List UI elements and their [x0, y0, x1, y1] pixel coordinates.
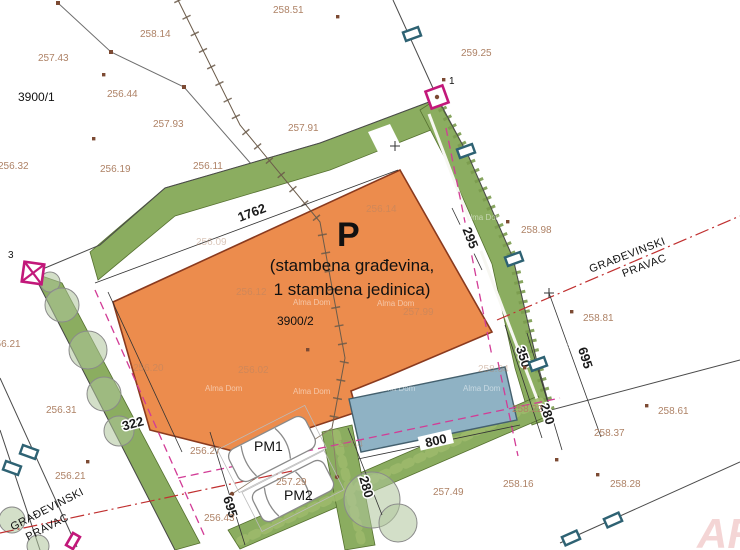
- spot-height: 256.31: [46, 405, 77, 416]
- watermark-text: Alma Dom: [463, 384, 501, 393]
- gate-marker: [20, 445, 38, 459]
- gate-marker: [562, 531, 580, 546]
- spot-height-faint: 256.12: [236, 287, 267, 298]
- boundary-vertex-dot: [56, 1, 60, 5]
- parcel-number-neighbor: 3900/1: [18, 90, 55, 104]
- spot-height: 258.14: [140, 29, 171, 40]
- tree: [87, 377, 121, 411]
- spot-height: 258.98: [521, 225, 552, 236]
- spot-height: 257.93: [153, 119, 184, 130]
- watermark-text: Alma Dom: [293, 387, 331, 396]
- parking-label-pm1: PM1: [254, 438, 283, 454]
- point-label-1: 1: [449, 76, 455, 87]
- watermark-text: Alma Dom: [293, 298, 331, 307]
- watermark-text: Alma Dom: [378, 384, 416, 393]
- spot-dot: [336, 15, 339, 18]
- boundary-marker-west: [22, 262, 45, 285]
- spot-height: 256.21: [55, 471, 86, 482]
- tree: [69, 331, 107, 369]
- point-label-3: 3: [8, 250, 14, 261]
- watermark-text: Alma Dom: [205, 213, 243, 222]
- spot-height-faint: 258.04: [478, 364, 509, 375]
- spot-dot: [506, 220, 509, 223]
- spot-dot: [102, 73, 105, 76]
- spot-height-faint: 256.02: [238, 365, 269, 376]
- watermark-text: Alma Dom: [465, 213, 503, 222]
- spot-height: 258.22: [512, 404, 543, 415]
- spot-height: 258.61: [658, 406, 689, 417]
- spot-height: 256.43: [204, 513, 235, 524]
- gate-marker: [403, 27, 421, 41]
- spot-height: 256.32: [0, 161, 29, 172]
- spot-height: 257.91: [288, 123, 319, 134]
- spot-height: 256.19: [100, 164, 131, 175]
- magenta-rect-marker-south: [66, 533, 80, 549]
- spot-height-faint: 257.99: [403, 307, 434, 318]
- parking-label-pm2: PM2: [284, 487, 313, 503]
- gate-marker: [604, 513, 622, 528]
- spot-height: 258.51: [273, 5, 304, 16]
- gate-marker: [3, 461, 21, 475]
- building-description-line2: 1 stambena jedinica): [274, 280, 431, 299]
- spot-height: 258.37: [594, 428, 625, 439]
- spot-height: 257.49: [433, 487, 464, 498]
- spot-height-faint: 256.09: [196, 237, 227, 248]
- parcel-number-main: 3900/2: [277, 314, 314, 328]
- neighbor-boundary-topleft: [58, 3, 252, 165]
- spot-height-faint: 256.20: [133, 363, 164, 374]
- spot-dot: [555, 458, 558, 461]
- spot-height: 258.28: [610, 479, 641, 490]
- tree: [379, 504, 417, 542]
- spot-height: 256.11: [193, 161, 223, 172]
- spot-dot: [570, 310, 573, 313]
- boundary-vertex-dot: [109, 50, 113, 54]
- dim-695-right-label: 695: [575, 345, 596, 370]
- boundary-vertex-dot: [182, 85, 186, 89]
- corner-watermark: ARH: [696, 510, 740, 550]
- spot-height: 256.21: [0, 339, 21, 350]
- road-line-north: [393, 0, 437, 97]
- spot-height-faint: 256.14: [366, 204, 397, 215]
- spot-height: 257.43: [38, 53, 69, 64]
- spot-height-faint: 257.4: [338, 439, 363, 450]
- spot-height: 256.44: [107, 89, 138, 100]
- building-description-line1: (stambena građevina,: [270, 256, 434, 275]
- spot-dot: [645, 404, 648, 407]
- spot-dot: [92, 137, 95, 140]
- spot-height: 258.16: [503, 479, 534, 490]
- spot-dot: [306, 348, 309, 351]
- building-mark: P: [337, 216, 360, 254]
- tree: [45, 288, 79, 322]
- watermark-text: Alma Dom: [540, 341, 578, 350]
- spot-height: 259.25: [461, 48, 492, 59]
- site-plan-canvas: 1762 295 800 322 695 695 350 280 280: [0, 0, 740, 550]
- spot-dot: [596, 473, 599, 476]
- spot-dot: [442, 78, 445, 81]
- watermark-text: Alma Dom: [377, 299, 415, 308]
- spot-dot: [86, 460, 89, 463]
- spot-height: 258.81: [583, 313, 614, 324]
- watermark-text: Alma Dom: [205, 384, 243, 393]
- spot-dot: [523, 366, 526, 369]
- spot-height: 256.27: [190, 446, 221, 457]
